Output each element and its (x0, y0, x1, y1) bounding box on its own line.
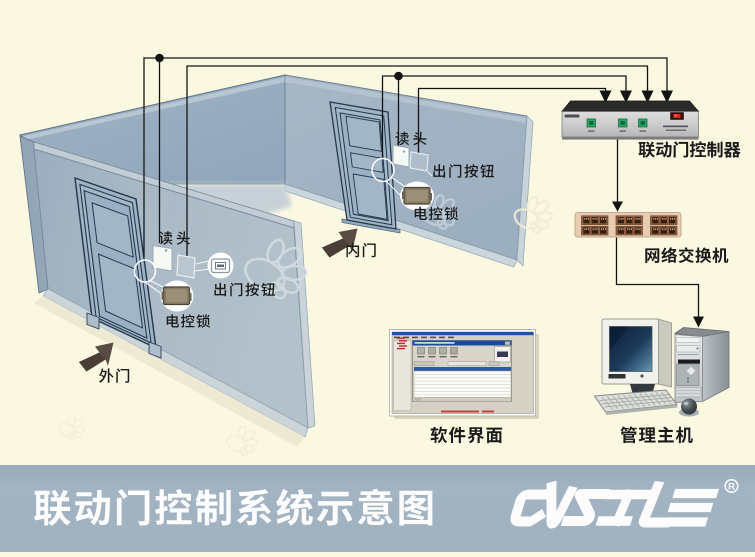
svg-text:R: R (728, 482, 735, 493)
